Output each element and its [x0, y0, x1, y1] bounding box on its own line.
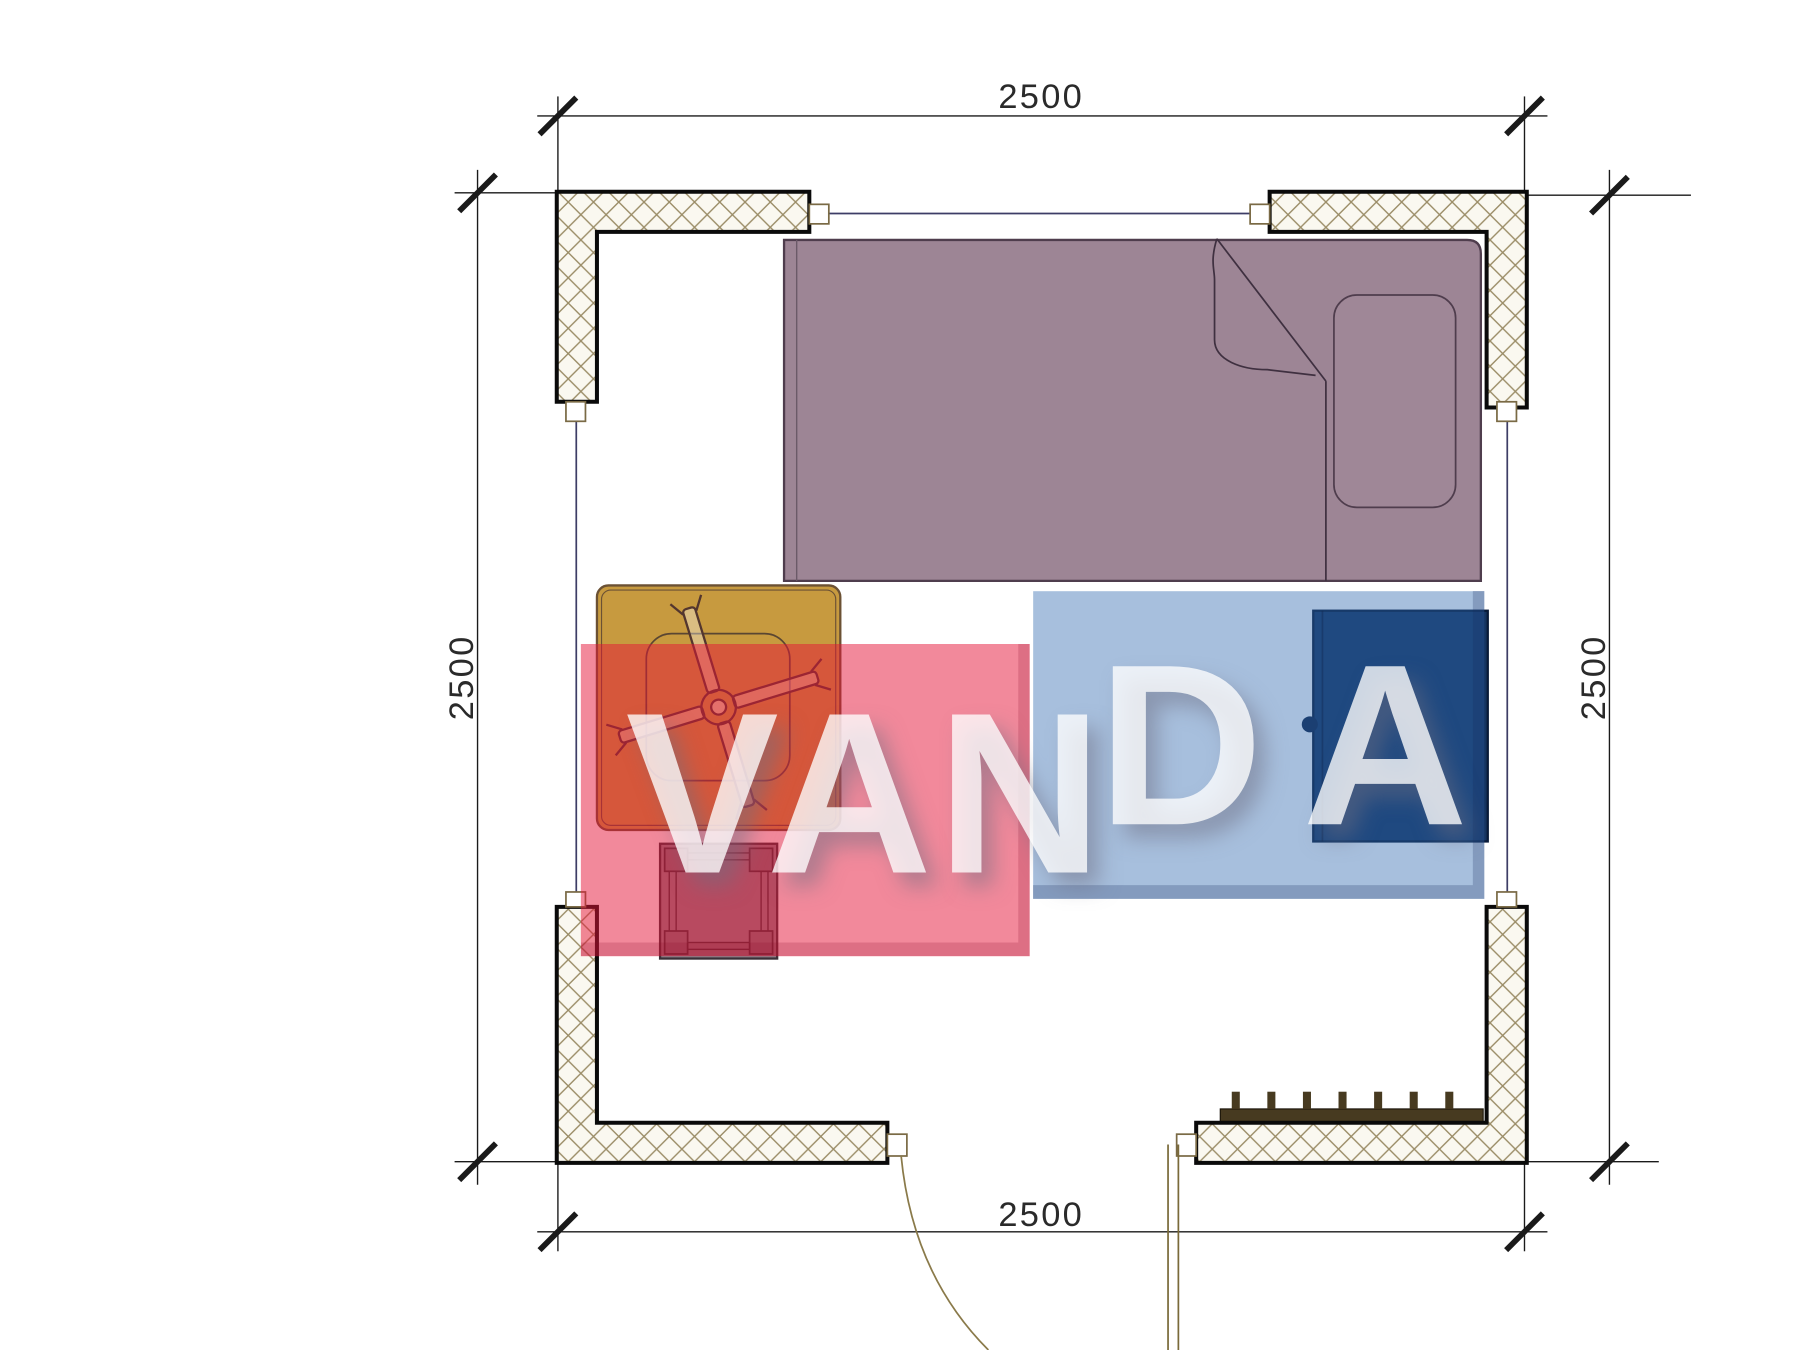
wall-bottom-right	[1196, 907, 1527, 1163]
floor-plan: 2500 2500 2500 2500	[0, 0, 1800, 1350]
door-icon	[887, 1134, 1196, 1350]
dimension-left: 2500	[443, 170, 558, 1185]
dimension-right: 2500	[1527, 170, 1691, 1185]
bed-icon	[784, 239, 1481, 581]
door-swing-arc	[901, 1156, 988, 1350]
watermark-text-da: DA	[1097, 631, 1507, 861]
dimension-top: 2500	[537, 78, 1547, 192]
door-leaf	[1168, 1145, 1178, 1350]
dimension-bottom: 2500	[537, 1163, 1547, 1251]
watermark-text-van: VAN	[626, 680, 1107, 910]
wall-top-left	[557, 192, 810, 402]
dimension-left-label: 2500	[443, 634, 481, 720]
dimension-top-label: 2500	[998, 78, 1084, 116]
radiator-icon	[1220, 1092, 1483, 1124]
dimension-right-label: 2500	[1575, 634, 1613, 720]
dimension-bottom-label: 2500	[998, 1196, 1084, 1234]
pillow-icon	[1334, 295, 1456, 507]
